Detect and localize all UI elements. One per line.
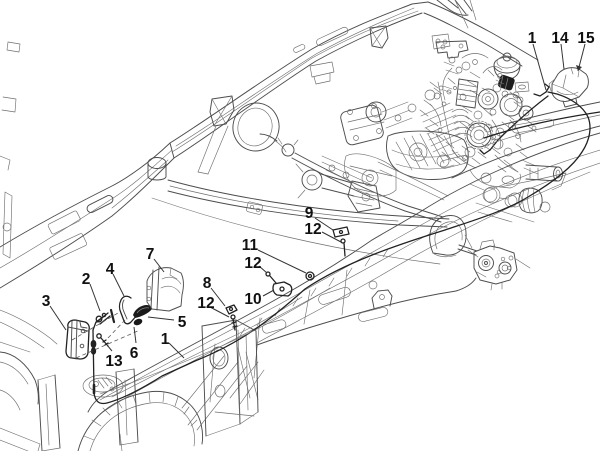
svg-text:9: 9 (305, 205, 314, 222)
svg-text:12: 12 (244, 255, 261, 272)
svg-text:1: 1 (528, 30, 537, 47)
svg-text:12: 12 (197, 295, 214, 312)
svg-text:13: 13 (105, 353, 123, 370)
svg-text:10: 10 (244, 291, 261, 308)
svg-text:15: 15 (577, 30, 595, 47)
svg-text:8: 8 (203, 275, 212, 292)
svg-text:6: 6 (130, 345, 139, 362)
svg-text:3: 3 (42, 293, 51, 310)
svg-text:2: 2 (82, 271, 91, 288)
svg-text:5: 5 (178, 314, 187, 331)
svg-text:1: 1 (161, 331, 170, 348)
svg-text:14: 14 (551, 30, 569, 47)
svg-text:11: 11 (242, 237, 259, 254)
svg-text:4: 4 (106, 261, 115, 278)
svg-text:12: 12 (304, 221, 321, 238)
svg-text:7: 7 (146, 246, 155, 263)
